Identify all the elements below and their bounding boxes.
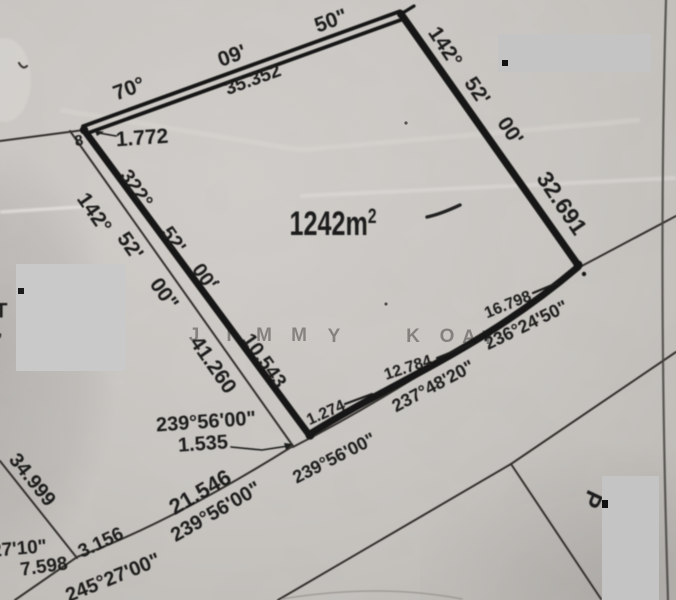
svg-text:M: M (291, 325, 307, 346)
svg-text:Y: Y (328, 326, 341, 347)
svg-text:T: T (0, 300, 8, 323)
svg-text:1.535: 1.535 (177, 431, 228, 456)
svg-text:K: K (406, 326, 420, 347)
svg-text:O: O (440, 326, 455, 347)
svg-text:1242m2: 1242m2 (290, 203, 377, 243)
svg-text:’: ’ (0, 332, 2, 349)
svg-text:1.772: 1.772 (115, 125, 169, 152)
